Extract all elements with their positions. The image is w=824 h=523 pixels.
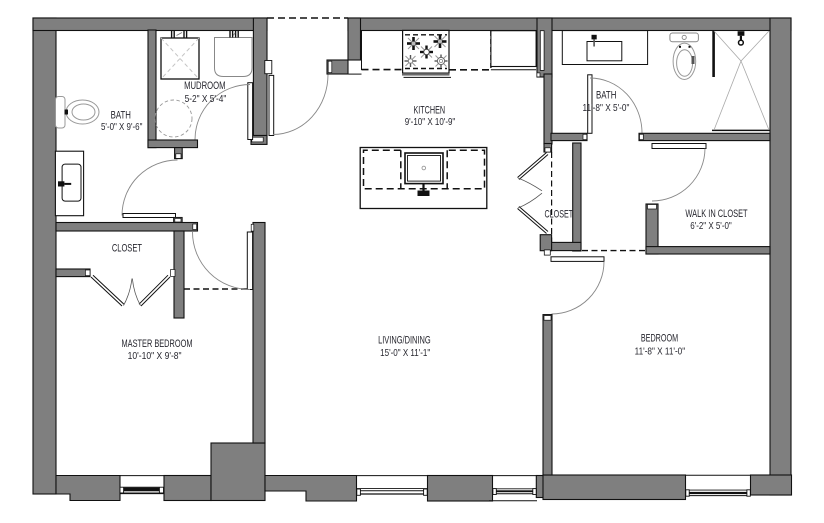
svg-text:MASTER BEDROOM: MASTER BEDROOM xyxy=(122,338,193,350)
svg-text:5'-0" X 9'-6": 5'-0" X 9'-6" xyxy=(101,122,143,133)
svg-text:11'-8" X 5'-0": 11'-8" X 5'-0" xyxy=(583,103,630,114)
svg-text:9'-10" X 10'-9": 9'-10" X 10'-9" xyxy=(405,117,456,128)
svg-text:CLOSET: CLOSET xyxy=(112,243,142,255)
svg-text:10'-10" X 9'-8": 10'-10" X 9'-8" xyxy=(128,351,182,362)
svg-text:15'-0" X 11'-1": 15'-0" X 11'-1" xyxy=(380,348,430,359)
svg-text:BEDROOM: BEDROOM xyxy=(641,333,678,345)
svg-text:BATH: BATH xyxy=(111,110,131,122)
svg-text:MUDROOM: MUDROOM xyxy=(184,80,225,92)
svg-text:KITCHEN: KITCHEN xyxy=(413,105,445,117)
svg-text:CLOSET: CLOSET xyxy=(544,208,573,220)
svg-text:BATH: BATH xyxy=(596,90,617,102)
svg-text:11'-8" X 11'-0": 11'-8" X 11'-0" xyxy=(635,346,686,357)
svg-text:LIVING/DINING: LIVING/DINING xyxy=(378,335,431,347)
svg-text:6'-2" X 5'-0": 6'-2" X 5'-0" xyxy=(690,221,732,232)
svg-text:WALK IN CLOSET: WALK IN CLOSET xyxy=(685,208,748,220)
svg-text:5-2" X 5'-4": 5-2" X 5'-4" xyxy=(185,94,227,105)
